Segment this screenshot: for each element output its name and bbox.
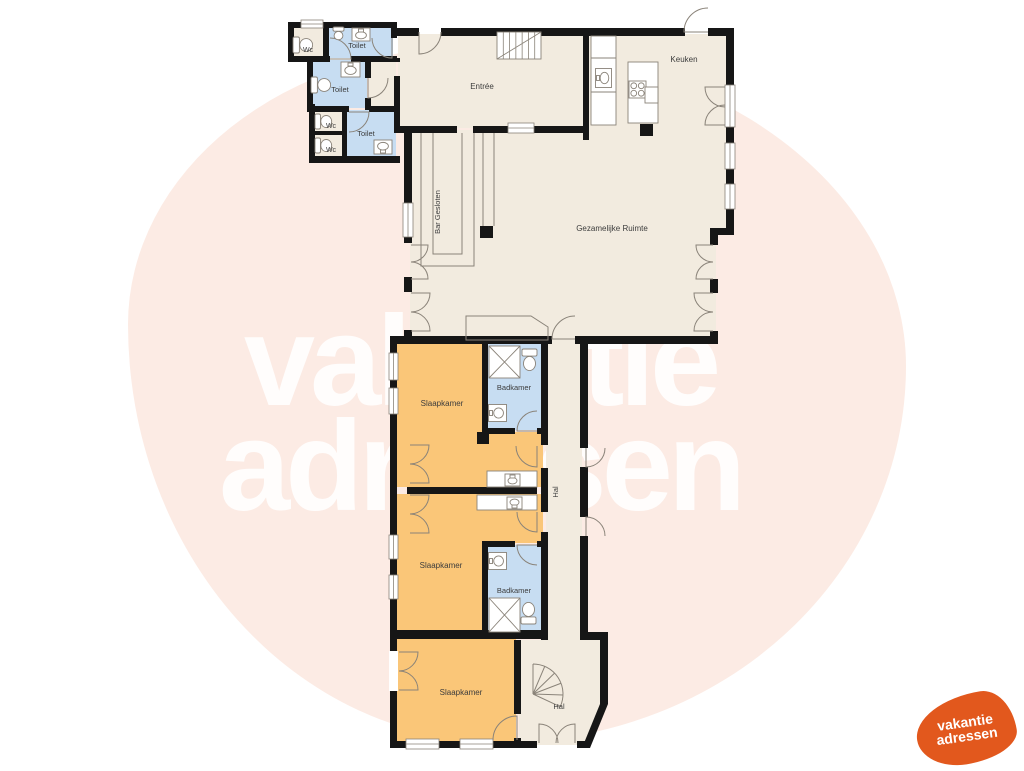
wall <box>583 28 589 140</box>
sink-bowl <box>494 408 504 418</box>
wall <box>369 106 396 112</box>
sink-tap <box>512 505 517 508</box>
column <box>477 432 489 444</box>
fixture-sink <box>374 140 392 154</box>
wall <box>482 541 488 637</box>
room-label: Slaapkamer <box>421 399 464 408</box>
room-label: Entrée <box>470 82 494 91</box>
sink-tap <box>490 559 493 564</box>
fixture-column <box>640 124 653 136</box>
floorplan-svg: WcToiletToiletWcWcToiletEntréeKeukenBar … <box>0 0 1024 768</box>
toilet-bowl <box>523 602 535 616</box>
column <box>480 226 493 238</box>
toilet-tank <box>311 77 317 93</box>
door-arc <box>586 448 605 467</box>
room-label: Hal <box>551 486 560 498</box>
stove-burner <box>638 83 644 89</box>
sink-bowl <box>345 66 356 74</box>
wall <box>514 640 521 714</box>
toilet-tank <box>315 138 320 153</box>
sink-tap <box>597 76 600 81</box>
wall <box>482 342 488 434</box>
room-label: Slaapkamer <box>420 561 463 570</box>
wall <box>309 156 400 163</box>
wall <box>394 126 457 133</box>
furniture-rect <box>645 87 658 103</box>
sink-bowl <box>378 142 389 150</box>
sink-tap <box>348 63 353 66</box>
fixture-sink <box>341 62 360 77</box>
room-label: Toilet <box>357 129 375 138</box>
wall <box>710 228 734 235</box>
wall <box>575 336 718 344</box>
room-entree <box>398 34 585 128</box>
room-label: Wc <box>326 147 337 154</box>
sink-bowl <box>356 32 367 39</box>
toilet-bowl <box>318 79 331 92</box>
room-label: Toilet <box>331 85 349 94</box>
wall <box>404 277 412 292</box>
room-label: Gezamelijke Ruimte <box>576 224 648 233</box>
wall <box>394 76 400 132</box>
fixture-column <box>480 226 493 238</box>
wall <box>726 168 734 186</box>
fixture-sink <box>507 497 522 509</box>
door-arc <box>684 8 708 32</box>
toilet-bowl <box>334 31 343 39</box>
wall <box>580 344 588 448</box>
fixture-shower <box>489 598 520 632</box>
wall <box>537 541 545 547</box>
sink-bowl <box>508 477 517 483</box>
vakantieadressen-logo: vakantie adressen <box>916 694 1016 764</box>
fixture-sink <box>489 405 507 422</box>
wall <box>407 487 537 494</box>
wall <box>394 28 419 36</box>
stove-burner <box>631 83 637 89</box>
toilet-tank <box>333 27 344 31</box>
wall <box>710 279 718 293</box>
logo-text: vakantie adressen <box>912 687 1021 770</box>
wall <box>580 536 588 634</box>
sink-tap <box>359 29 364 32</box>
toilet-bowl <box>524 356 536 370</box>
sink-tap <box>510 475 515 478</box>
wall <box>541 468 548 512</box>
wall <box>541 532 548 640</box>
wall <box>541 344 548 445</box>
fixture-toilet <box>522 349 537 371</box>
sink-tap <box>381 150 386 153</box>
fixture-sink <box>352 28 370 41</box>
wall <box>726 126 734 145</box>
stove-burner <box>638 90 644 96</box>
fixture-stairs <box>497 32 541 59</box>
toilet-tank <box>315 114 320 129</box>
fixture-column <box>477 432 489 444</box>
wall <box>394 58 400 62</box>
stove-burner <box>631 90 637 96</box>
wall <box>351 56 397 62</box>
room-gezamelijke-ruimte-b <box>410 234 716 338</box>
wall <box>600 640 608 704</box>
wall <box>342 110 347 158</box>
wall <box>726 28 734 86</box>
column <box>640 124 653 136</box>
fixture-toilet <box>333 27 344 40</box>
toilet-tank <box>522 349 537 356</box>
wall <box>390 630 546 639</box>
room-label: Toilet <box>348 41 366 50</box>
sink-bowl <box>494 556 504 566</box>
room-label: Badkamer <box>497 586 532 595</box>
toilet-tank <box>521 617 536 624</box>
wall <box>313 131 344 135</box>
fixture-sink <box>505 474 520 486</box>
wall <box>309 104 315 162</box>
door-opening <box>389 651 398 691</box>
fixture-sink <box>596 69 612 88</box>
fixture-rect <box>645 87 658 103</box>
sink-bowl <box>510 499 519 505</box>
room-label: Badkamer <box>497 383 532 392</box>
sink-tap <box>490 411 493 416</box>
room-label: Wc <box>303 47 314 54</box>
wall <box>580 632 608 640</box>
wall <box>710 235 718 245</box>
sink-bowl <box>600 72 609 83</box>
room-label: Keuken <box>670 55 697 64</box>
room-label: Wc <box>326 123 337 130</box>
fixture-shower <box>489 346 520 378</box>
wall <box>580 467 588 517</box>
toilet-tank <box>293 37 299 53</box>
fixture-toilet <box>311 77 331 93</box>
room-label: Slaapkamer <box>440 688 483 697</box>
door-arc <box>586 517 605 536</box>
wall <box>441 28 685 36</box>
wall <box>365 60 371 78</box>
room-label: Bar Gesloten <box>433 190 442 234</box>
room-gezamelijke-ruimte-a <box>410 130 728 234</box>
room-label: Hal <box>553 702 565 711</box>
fixture-stove <box>629 81 646 98</box>
fixture-sink <box>489 553 507 570</box>
fixture-toilet <box>521 602 536 624</box>
